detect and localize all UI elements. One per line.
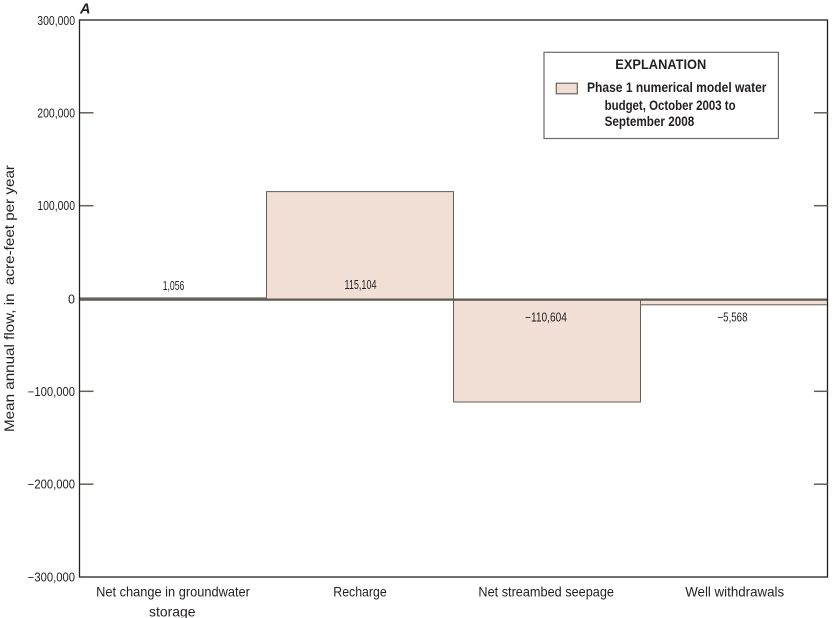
svg-text:−200,000: −200,000 [28, 478, 75, 492]
svg-text:−5,568: −5,568 [718, 310, 748, 324]
svg-text:Well withdrawals: Well withdrawals [685, 584, 784, 600]
svg-text:−300,000: −300,000 [28, 571, 75, 585]
svg-text:−110,604: −110,604 [525, 310, 567, 324]
svg-text:budget, October 2003 to: budget, October 2003 to [605, 97, 736, 113]
svg-text:Mean annual flow, in acre-fee: Mean annual flow, in acre-feet per year [2, 164, 17, 432]
svg-text:1,056: 1,056 [163, 279, 185, 293]
svg-text:Recharge: Recharge [333, 584, 387, 600]
svg-text:September 2008: September 2008 [605, 113, 695, 129]
svg-text:200,000: 200,000 [37, 106, 75, 120]
svg-text:−100,000: −100,000 [28, 385, 75, 399]
svg-text:100,000: 100,000 [37, 199, 75, 213]
svg-text:Net change in groundwater: Net change in groundwater [96, 584, 250, 600]
svg-text:Net streambed seepage: Net streambed seepage [478, 584, 614, 600]
svg-text:115,104: 115,104 [345, 278, 377, 292]
svg-text:storage: storage [149, 604, 196, 618]
svg-text:0: 0 [68, 292, 75, 306]
svg-text:Phase 1 numerical model water: Phase 1 numerical model water [587, 79, 767, 95]
svg-text:EXPLANATION: EXPLANATION [615, 57, 706, 72]
svg-text:300,000: 300,000 [37, 14, 75, 28]
svg-text:A: A [79, 2, 90, 18]
